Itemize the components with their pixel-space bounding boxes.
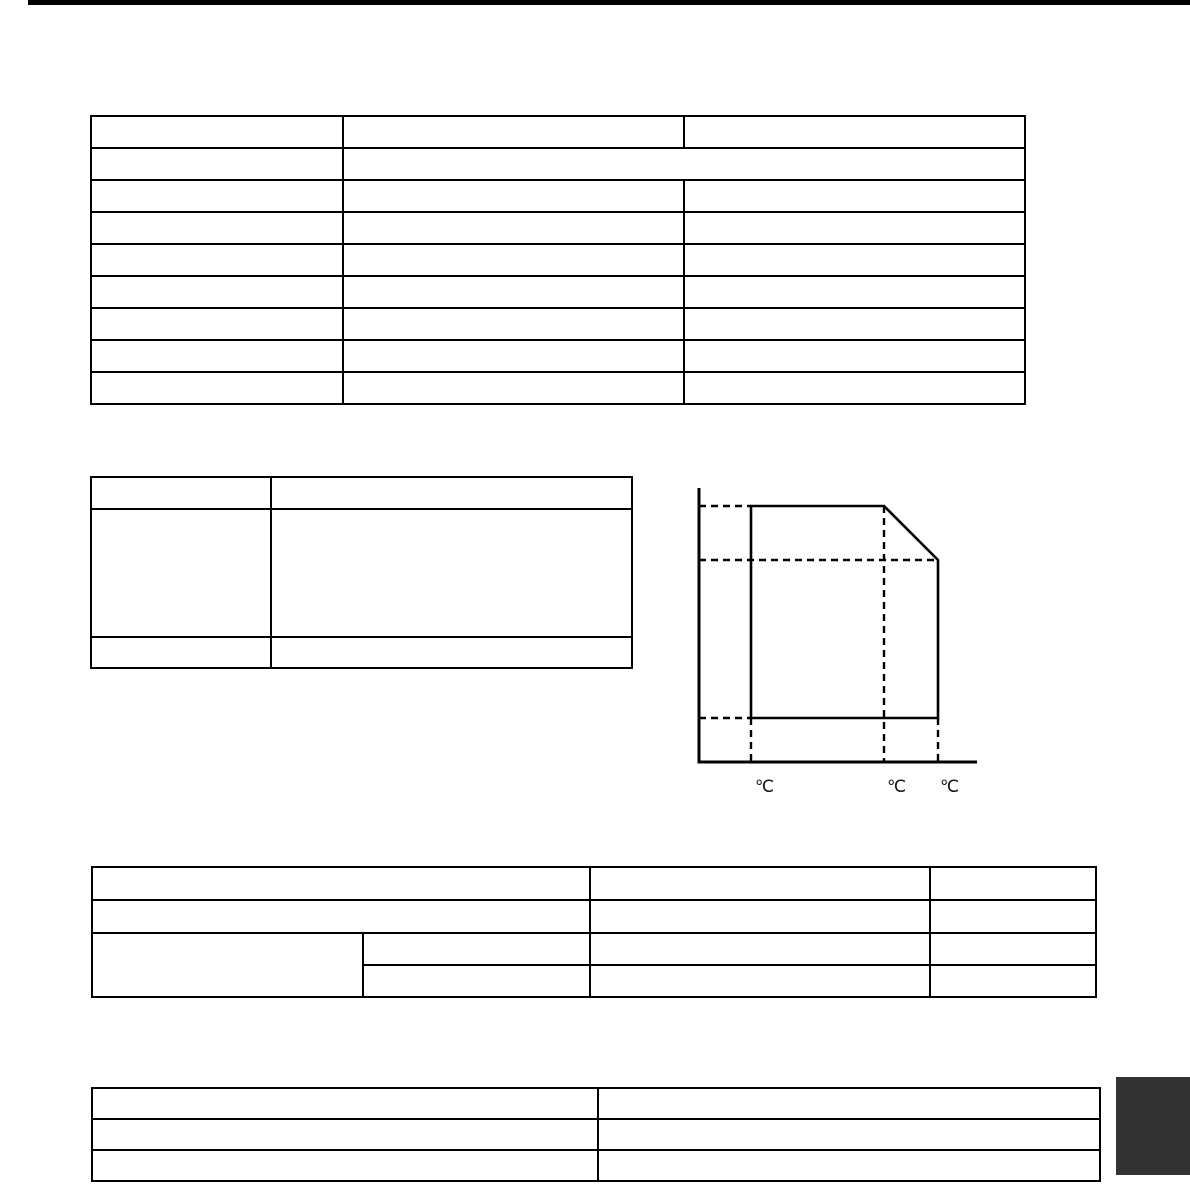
table-cell-merged <box>92 900 590 933</box>
table-cell <box>92 1088 598 1119</box>
table-cell <box>598 1088 1100 1119</box>
table-cell <box>684 116 1025 148</box>
table-cell <box>343 212 684 244</box>
table-cell <box>271 637 632 668</box>
envelope-outline <box>751 506 938 718</box>
table-cell <box>590 933 930 965</box>
table-cell <box>598 1119 1100 1150</box>
table-row <box>92 900 1096 933</box>
table-cell <box>684 308 1025 340</box>
table-cell <box>343 244 684 276</box>
table-cell <box>91 477 271 509</box>
table-cell <box>930 965 1096 997</box>
table-row <box>91 308 1025 340</box>
document-page: ℃ ℃ ℃ <box>0 0 1190 1184</box>
table-row <box>91 477 632 509</box>
table-cell <box>92 1150 598 1181</box>
table-row <box>91 637 632 668</box>
table-cell <box>930 900 1096 933</box>
table-cell <box>91 276 343 308</box>
table-cell <box>684 276 1025 308</box>
celsius-label-2: ℃ <box>887 777 906 797</box>
table-cell <box>92 1119 598 1150</box>
operating-range-diagram <box>680 480 990 805</box>
table-cell <box>91 637 271 668</box>
conditions-table <box>90 476 633 669</box>
table-row <box>91 148 1025 180</box>
table-cell <box>343 340 684 372</box>
table-cell <box>343 116 684 148</box>
table-cell <box>91 212 343 244</box>
table-cell <box>343 308 684 340</box>
table-cell <box>343 276 684 308</box>
table-cell-rowspan <box>92 933 363 997</box>
table-row <box>91 180 1025 212</box>
table-cell <box>930 933 1096 965</box>
table-cell <box>598 1150 1100 1181</box>
page-edge-tab-block <box>1116 1077 1190 1175</box>
table-cell <box>363 933 590 965</box>
table-cell <box>684 180 1025 212</box>
table-cell <box>91 180 343 212</box>
spec-table <box>90 115 1026 405</box>
bottom-table <box>91 1087 1101 1182</box>
table-row <box>91 276 1025 308</box>
table-row <box>91 340 1025 372</box>
table-cell-merged <box>343 148 1025 180</box>
table-cell <box>343 372 684 404</box>
table-cell <box>91 308 343 340</box>
table-cell <box>91 244 343 276</box>
top-rule <box>28 0 1190 5</box>
table-cell <box>590 900 930 933</box>
table-row <box>92 867 1096 900</box>
table-cell <box>684 212 1025 244</box>
celsius-label-3: ℃ <box>940 777 959 797</box>
table-row <box>91 244 1025 276</box>
table-cell <box>271 477 632 509</box>
table-row <box>92 1150 1100 1181</box>
table-cell <box>684 340 1025 372</box>
table-cell <box>91 148 343 180</box>
table-cell <box>91 116 343 148</box>
table-row <box>92 933 1096 965</box>
celsius-label-1: ℃ <box>755 777 774 797</box>
table-cell <box>271 509 632 637</box>
table-cell <box>343 180 684 212</box>
table-cell <box>91 509 271 637</box>
table-cell-merged <box>92 867 590 900</box>
table-cell <box>684 372 1025 404</box>
table-row <box>91 509 632 637</box>
ratings-table <box>91 866 1097 998</box>
table-cell <box>684 244 1025 276</box>
table-cell <box>91 372 343 404</box>
dashed-guides <box>699 506 938 762</box>
table-cell <box>590 965 930 997</box>
table-row <box>92 1088 1100 1119</box>
table-cell <box>363 965 590 997</box>
table-cell <box>930 867 1096 900</box>
table-row <box>92 1119 1100 1150</box>
table-cell <box>91 340 343 372</box>
table-row <box>91 212 1025 244</box>
table-row <box>91 372 1025 404</box>
table-row <box>91 116 1025 148</box>
table-cell <box>590 867 930 900</box>
